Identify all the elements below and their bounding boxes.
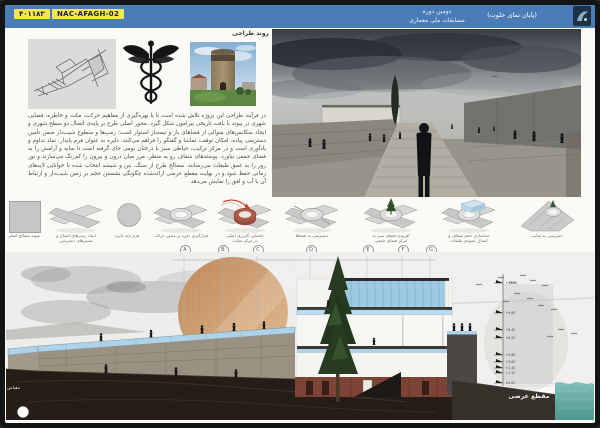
entry-code-badge: ۴۰۱۱۸۳ <box>14 9 50 19</box>
diagram-caption: دسترسی به فضاها <box>280 233 344 238</box>
process-diagram-circle <box>103 198 159 236</box>
level-label: +9.60 <box>506 311 516 315</box>
render-art <box>272 29 581 197</box>
event-subtitle: دومین دوره مسابقات ملی معماری <box>397 7 477 25</box>
section-title-label: مقطع عرضی <box>508 393 549 400</box>
entry-id-badge: NAC-AFAGH-02 <box>52 9 124 19</box>
cross-section-drawing: +13.20 +9.60 +8.40 +6.20 +4.80 +3.60 +2.… <box>6 252 594 420</box>
access-diagram-icon <box>284 198 340 236</box>
diagram-caption: دسترسی به سایت <box>515 233 579 238</box>
level-label: +13.20 <box>506 281 518 285</box>
exploded-diagram-icon <box>441 198 497 236</box>
perspective-render-image <box>272 29 581 197</box>
process-label: روند طراحی <box>225 30 269 37</box>
level-label: +4.80 <box>506 353 516 357</box>
ring-diagram-icon <box>153 198 209 236</box>
historic-tower-photo <box>190 42 256 106</box>
diagram-caption: افزودن فضای سبز به مرکز فضای جمعی <box>359 233 423 244</box>
diagram-caption: جداسازی حجم شفاف و اتصال عمودی طبقات <box>437 233 501 244</box>
project-description: در فرآیند طراحی این پروژه تلاش شده است ت… <box>28 112 266 196</box>
level-label: +2.40 <box>506 366 516 370</box>
material-swatch <box>9 201 41 233</box>
process-diagram-exploded <box>441 198 497 236</box>
caduceus-drawing <box>120 37 182 110</box>
caduceus-icon <box>120 37 182 110</box>
event-line1: دومین دوره <box>397 7 477 16</box>
page-marker-dot <box>18 407 29 418</box>
process-diagram-program <box>217 198 273 236</box>
site-plan-diagram-icon <box>519 198 575 236</box>
header-bar: ۴۰۱۱۸۳ NAC-AFAGH-02 دومین دوره مسابقات م… <box>5 5 595 28</box>
level-label: +1.20 <box>506 371 516 375</box>
process-diagram-site <box>519 198 575 236</box>
competition-logo-icon <box>573 6 591 26</box>
diagram-caption: جانمایی کاربری اصلی در مرکز سایت <box>213 233 277 244</box>
scale-label: مقیاس : ۱:۱۰۰ <box>6 386 21 391</box>
tower-photo-art <box>190 42 256 106</box>
concept-sketch-image <box>28 39 116 109</box>
project-title: (پایان نمای خلوت) <box>481 11 543 19</box>
level-label: +8.40 <box>506 328 516 332</box>
red-ring-diagram-icon <box>217 198 273 236</box>
process-diagram-access <box>284 198 340 236</box>
level-label: ±0.00 <box>506 381 516 385</box>
process-diagram-ramps <box>48 198 104 236</box>
event-line2: مسابقات ملی معماری <box>397 16 477 25</box>
process-diagram-ring <box>153 198 209 236</box>
sketch-drawing <box>28 39 116 109</box>
tree-diagram-icon <box>363 198 419 236</box>
circle-diagram-icon <box>103 198 159 236</box>
level-label: +3.60 <box>506 360 516 364</box>
diagram-caption: قرارگیری دایره بر محور حرکت <box>149 233 213 238</box>
ramps-diagram-icon <box>48 198 104 236</box>
diagram-caption: نمونه مصالح اصلی <box>5 233 46 238</box>
level-label: +6.20 <box>506 336 516 340</box>
presentation-board: ۴۰۱۱۸۳ NAC-AFAGH-02 دومین دوره مسابقات م… <box>0 0 600 428</box>
board-sheet: ۴۰۱۱۸۳ NAC-AFAGH-02 دومین دوره مسابقات م… <box>5 5 595 423</box>
process-diagram-greenery <box>363 198 419 236</box>
